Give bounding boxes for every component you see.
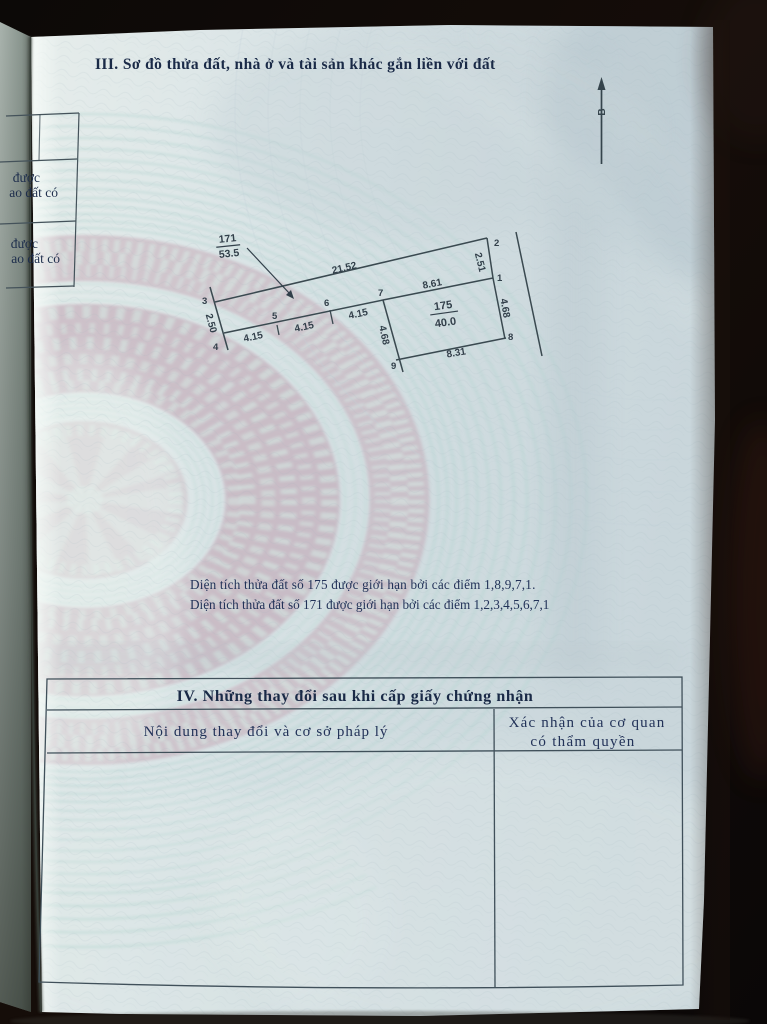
svg-text:5: 5: [272, 311, 278, 322]
svg-text:Xác nhận của cơ quan: Xác nhận của cơ quan: [509, 715, 666, 731]
svg-text:có thẩm quyền: có thẩm quyền: [530, 734, 635, 750]
svg-text:3: 3: [202, 296, 207, 307]
svg-text:ao đất có: ao đất có: [9, 185, 58, 200]
svg-text:175: 175: [433, 299, 453, 313]
svg-text:được: được: [11, 236, 38, 251]
svg-text:53.5: 53.5: [218, 247, 240, 261]
svg-text:4: 4: [213, 342, 219, 353]
svg-text:Diện tích thửa đất số 175 được: Diện tích thửa đất số 175 được giới hạn …: [190, 577, 536, 592]
svg-text:IV. Những thay đổi sau khi cấp: IV. Những thay đổi sau khi cấp giấy chứn…: [177, 688, 534, 705]
svg-text:ao đất có: ao đất có: [11, 251, 60, 266]
svg-text:8: 8: [508, 332, 513, 343]
svg-text:171: 171: [218, 232, 237, 246]
svg-text:Diện tích thửa đất số 171 được: Diện tích thửa đất số 171 được giới hạn …: [190, 597, 549, 612]
svg-text:7: 7: [378, 288, 383, 299]
svg-text:III. Sơ đồ thửa đất, nhà ở và: III. Sơ đồ thửa đất, nhà ở và tài sản kh…: [95, 56, 496, 73]
svg-text:được: được: [13, 170, 40, 185]
svg-text:B: B: [597, 108, 608, 115]
svg-text:6: 6: [324, 298, 329, 309]
svg-text:Nội dung thay đổi và cơ sở phá: Nội dung thay đổi và cơ sở pháp lý: [144, 724, 389, 740]
svg-text:9: 9: [391, 361, 396, 372]
svg-text:1: 1: [497, 273, 503, 284]
svg-text:2: 2: [494, 238, 499, 249]
